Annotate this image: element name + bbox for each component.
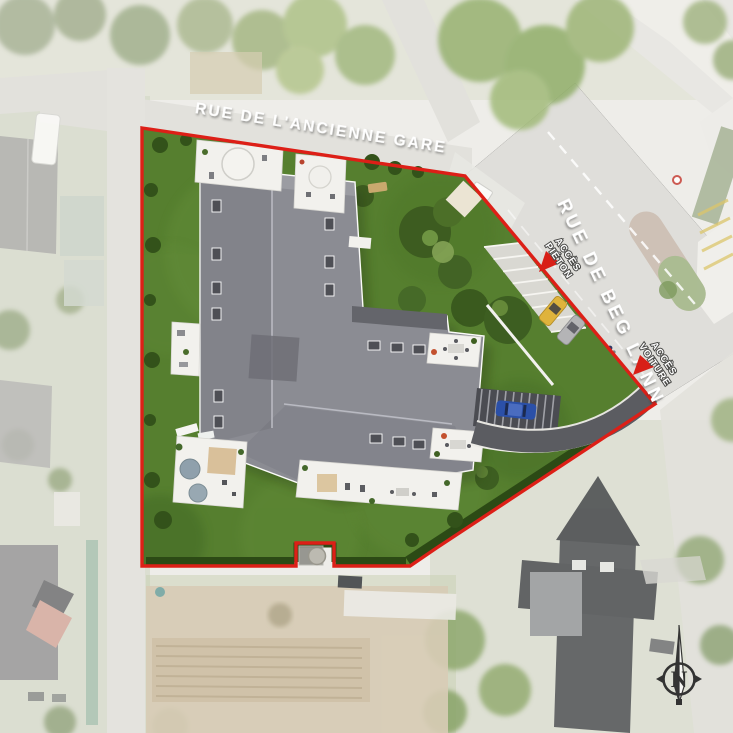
parasol-southwest-1	[180, 459, 200, 479]
lane-west	[107, 68, 145, 733]
garden-field	[146, 575, 456, 733]
parasol-north	[309, 166, 331, 188]
stair-core-roof	[249, 334, 300, 381]
white-van	[31, 113, 60, 165]
compass-north-letter: N	[671, 667, 688, 692]
notch-shed	[299, 546, 326, 565]
parapet-northeast	[349, 236, 372, 249]
parasol-northwest	[222, 148, 254, 180]
terrace-rug	[207, 447, 237, 475]
road-sign	[673, 176, 681, 184]
tarp	[344, 590, 457, 620]
island-tree	[659, 281, 677, 299]
terrace-west	[171, 322, 200, 376]
dirt-patch	[190, 52, 262, 94]
parasol-southwest-2	[189, 484, 207, 502]
parked-car-garden	[338, 575, 363, 588]
site-plan-canvas: RUE DE L'ANCIENNE GARE RUE DE BEG LANN A…	[0, 0, 733, 733]
teal-hedge	[86, 540, 98, 725]
